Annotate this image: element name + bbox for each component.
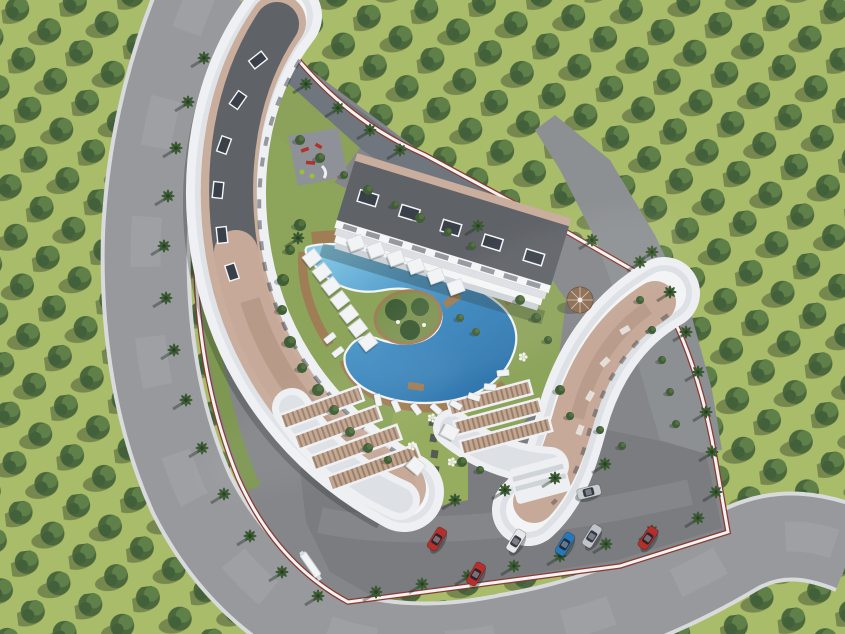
scene-svg xyxy=(0,0,845,634)
sun-lounger xyxy=(496,369,510,377)
aerial-render xyxy=(0,0,845,634)
sun-lounger xyxy=(483,383,497,391)
roof-window xyxy=(216,227,228,244)
roof-window xyxy=(212,182,224,199)
